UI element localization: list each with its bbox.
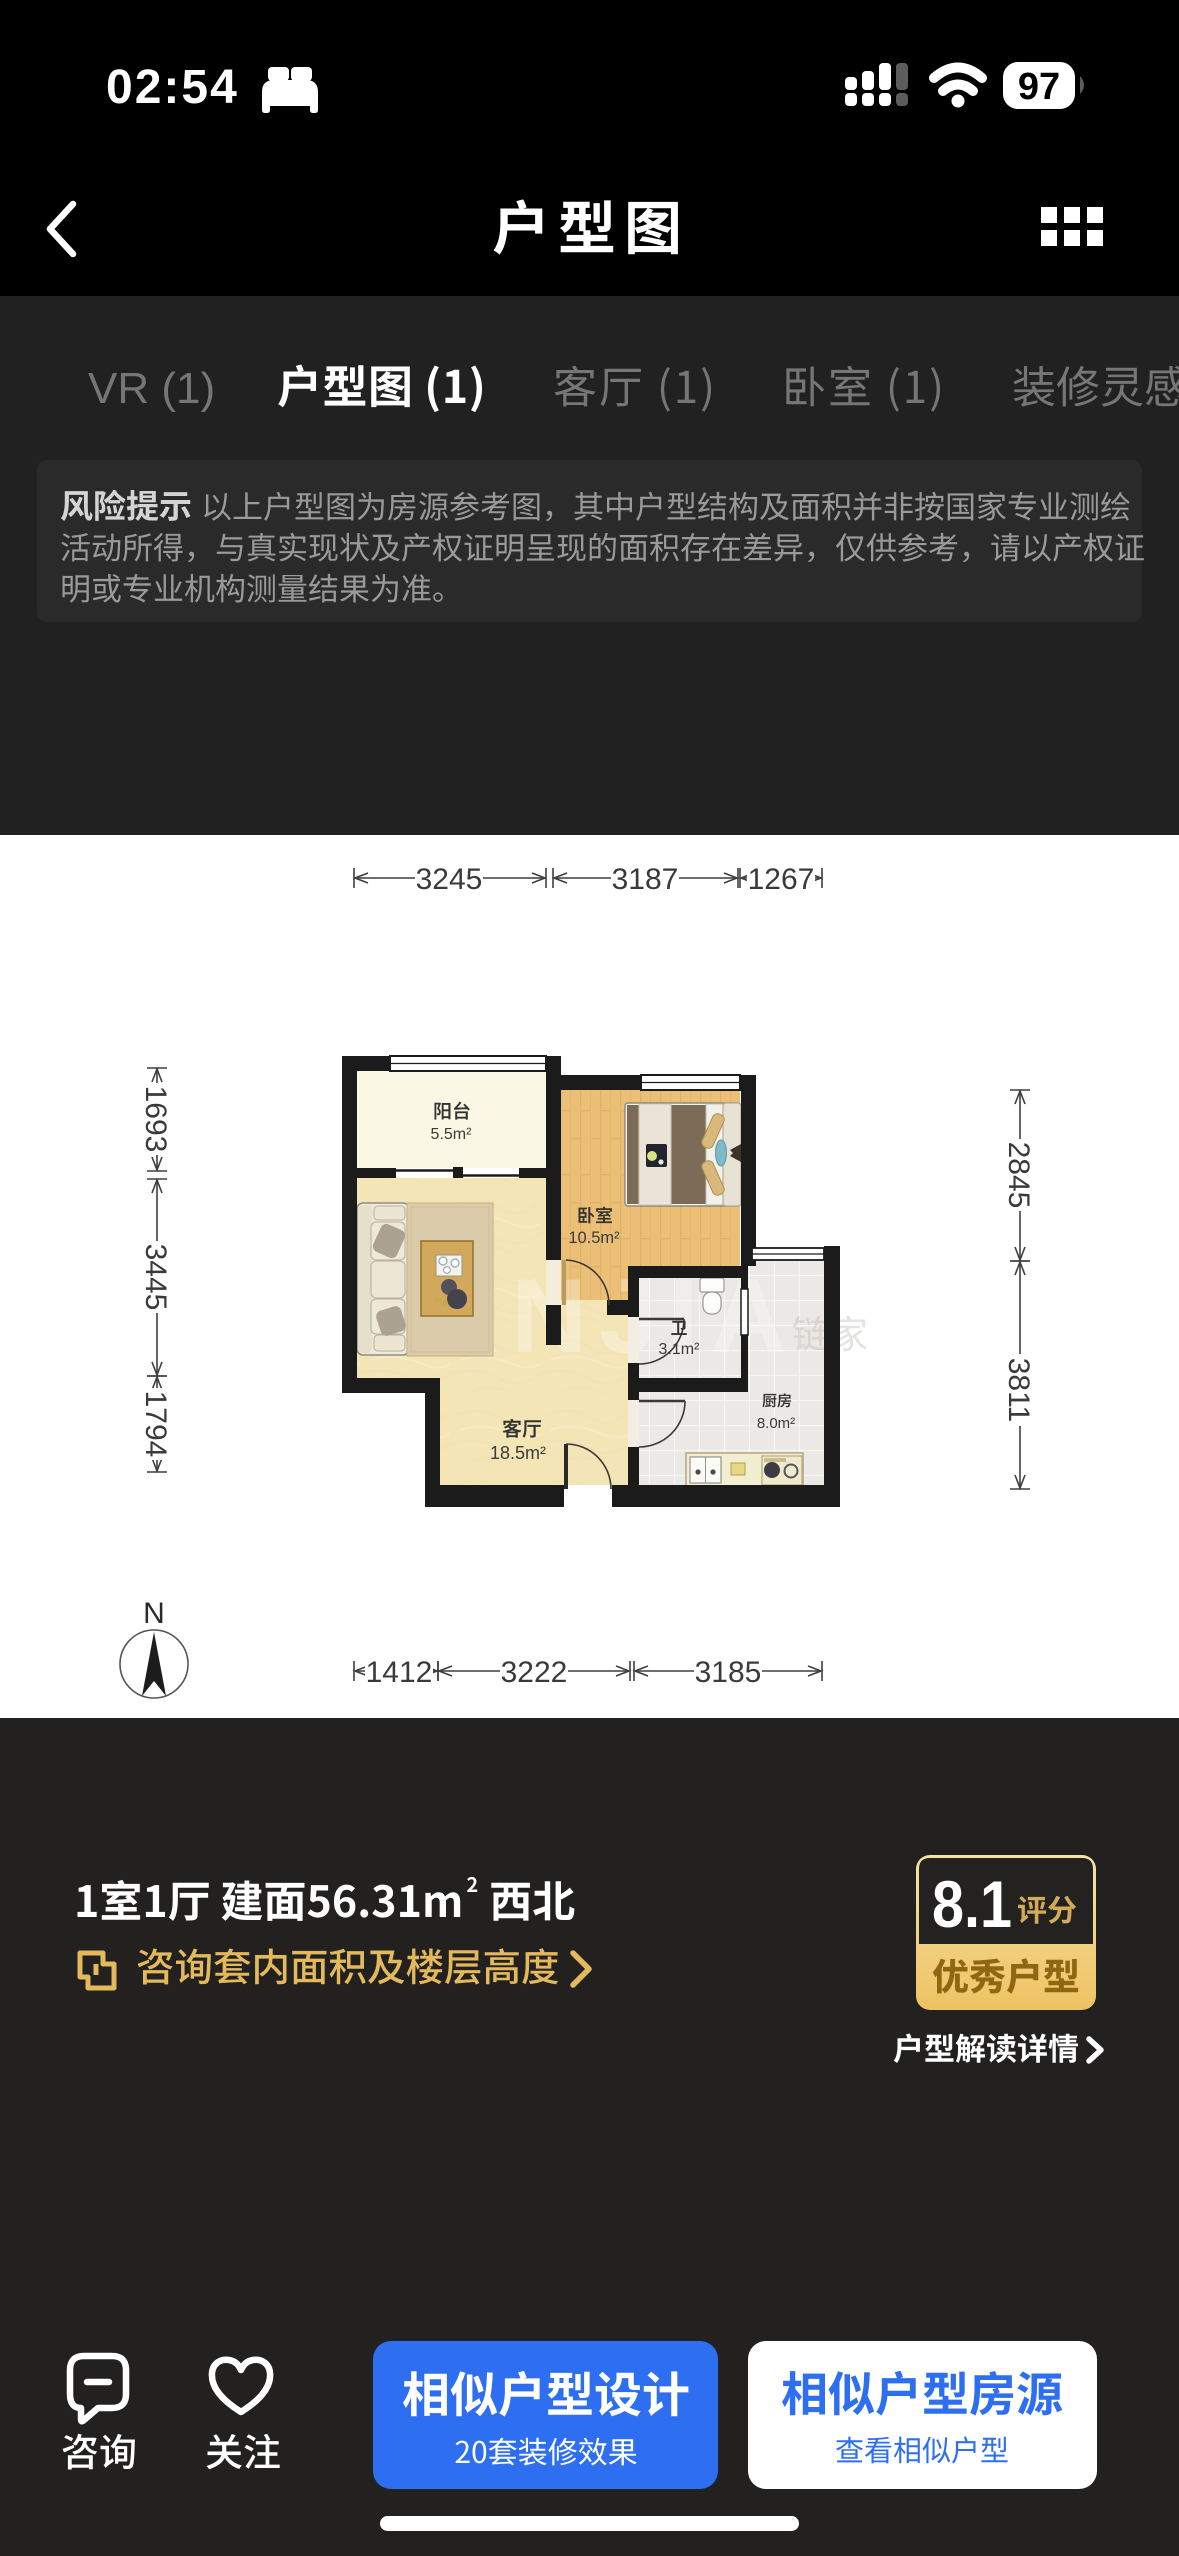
svg-text:18.5m²: 18.5m²: [490, 1443, 546, 1463]
svg-text:3811: 3811: [1002, 1358, 1035, 1423]
svg-text:97: 97: [1018, 66, 1060, 108]
svg-text:3.1m²: 3.1m²: [659, 1341, 701, 1358]
svg-text:8.0m²: 8.0m²: [757, 1415, 795, 1432]
svg-text:3187: 3187: [612, 863, 679, 896]
svg-text:3245: 3245: [416, 863, 483, 896]
svg-text:1693: 1693: [139, 1086, 172, 1153]
svg-text:3185: 3185: [695, 1656, 762, 1689]
svg-text:1794: 1794: [139, 1391, 172, 1458]
svg-text:1412: 1412: [366, 1656, 433, 1689]
svg-text:3222: 3222: [501, 1656, 568, 1689]
svg-text:10.5m²: 10.5m²: [568, 1229, 620, 1247]
svg-text:8.1: 8.1: [932, 1867, 1012, 1941]
svg-text:1267: 1267: [748, 863, 815, 896]
svg-text:3445: 3445: [139, 1244, 172, 1311]
svg-text:VR (1): VR (1): [88, 364, 215, 413]
svg-text:N: N: [143, 1597, 165, 1630]
svg-text:2845: 2845: [1002, 1142, 1035, 1209]
svg-text:5.5m²: 5.5m²: [431, 1126, 473, 1143]
